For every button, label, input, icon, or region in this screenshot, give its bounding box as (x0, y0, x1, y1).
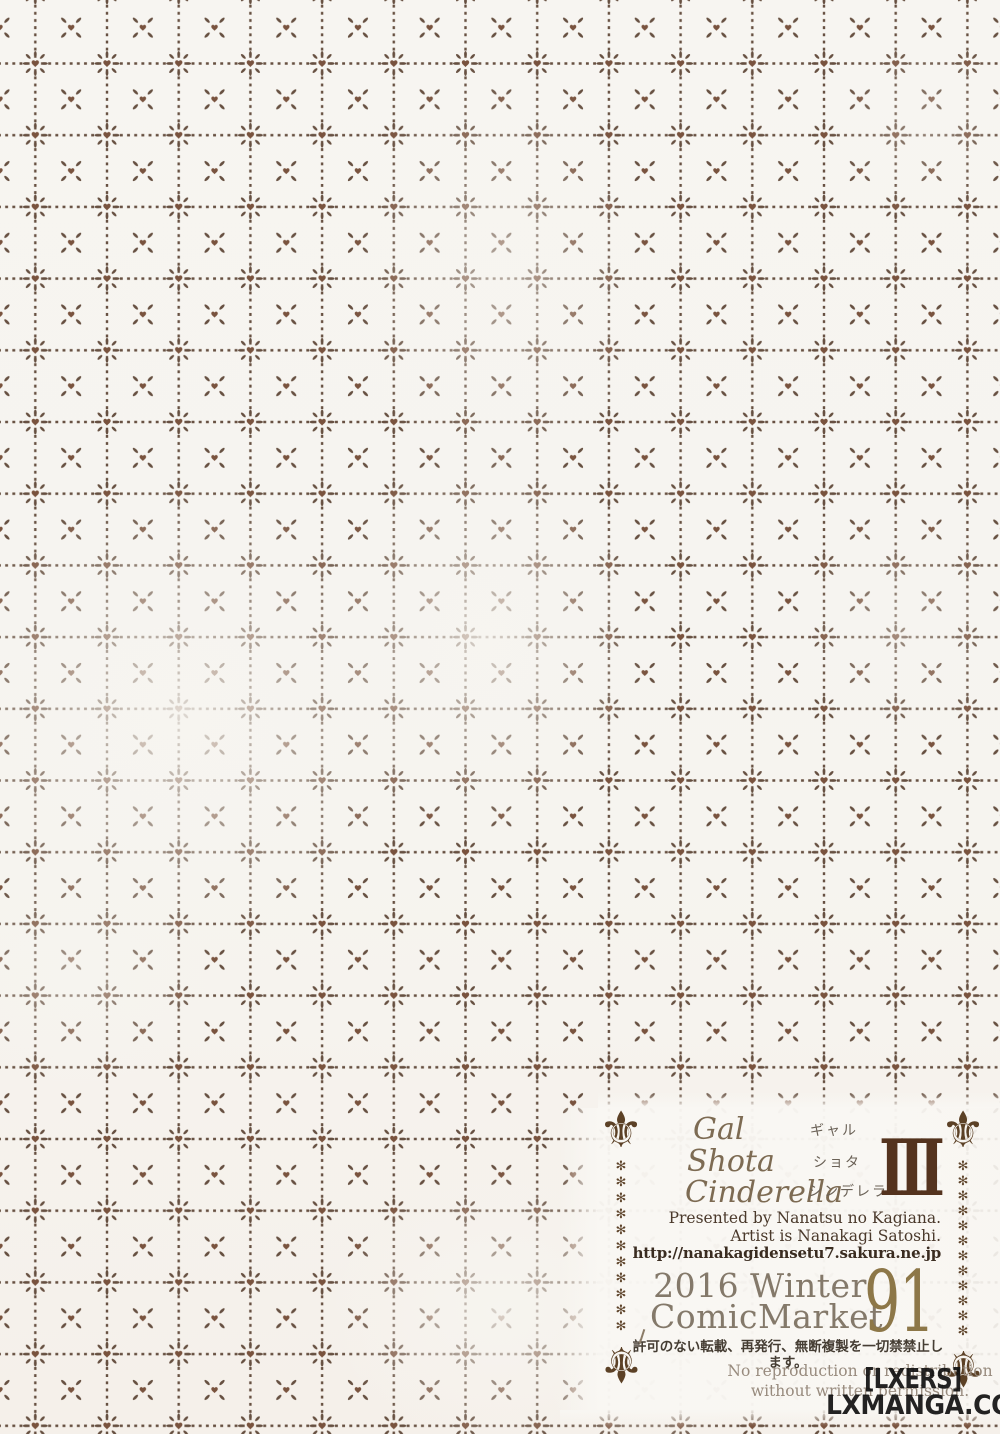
watermark-lxmanga: LXMANGA.COM (826, 1392, 1000, 1419)
event-name: ComicMarket (650, 1301, 870, 1332)
volume-numeral: III (879, 1130, 938, 1208)
asterisk-column: ✻ ✻ ✻ ✻ ✻ ✻ ✻ ✻ ✻ ✻ ✻ ✻ (958, 1159, 969, 1339)
title-kana-cinderella: シンデレラ (808, 1185, 888, 1199)
event-number: 91 (864, 1260, 934, 1344)
title-word-gal: Gal (693, 1115, 744, 1145)
fleur-de-lis-icon: ⚜ (941, 1104, 986, 1156)
title-kana-gal: ギャル (810, 1124, 858, 1138)
credit-artist: Artist is Nanakagi Satoshi. (600, 1228, 941, 1246)
watermark-lxers: [LXERS] (864, 1365, 961, 1393)
title-word-shota: Shota (687, 1147, 775, 1177)
title-kana-shota: ショタ (813, 1156, 861, 1170)
scanned-doujinshi-back-cover: ⚜ ✻ ✻ ✻ ✻ ✻ ✻ ✻ ✻ ✻ ✻ ✻ ⚜ ⚜ ✻ ✻ ✻ ✻ ✻ ✻ … (0, 0, 1000, 1434)
event-block: 2016 Winter ComicMarket (650, 1270, 870, 1332)
fleur-de-lis-icon: ⚜ (599, 1104, 644, 1156)
credit-circle: Presented by Nanatsu no Kagiana. (600, 1210, 941, 1228)
